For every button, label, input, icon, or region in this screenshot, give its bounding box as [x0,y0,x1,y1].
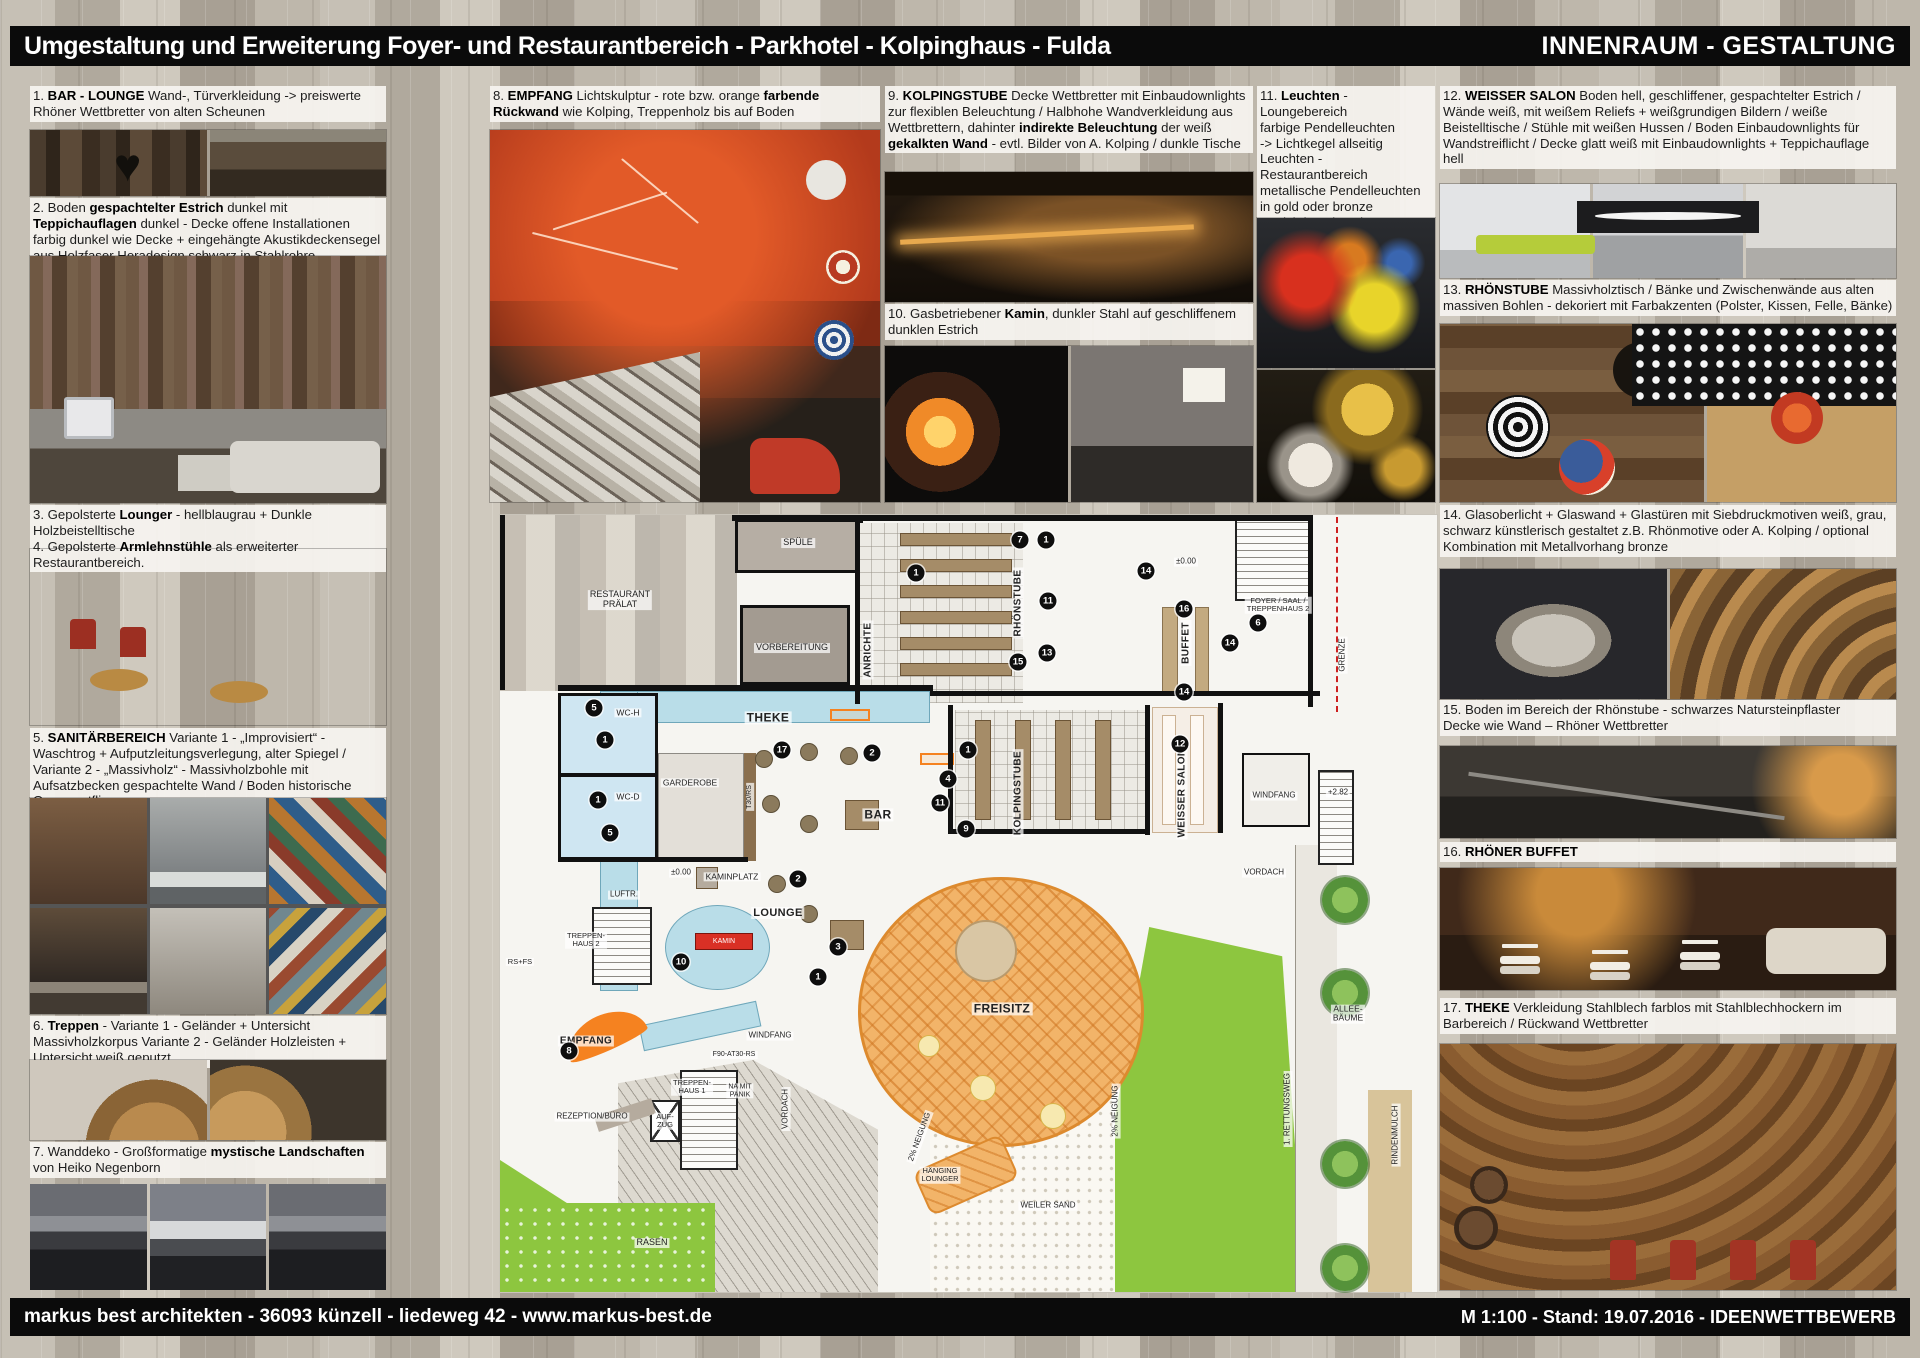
lime-pillow-shape [1476,235,1595,254]
annotation-keyword: BAR - LOUNGE [48,88,145,103]
photo-spiegel [30,908,147,1014]
bright-window-shape [1183,368,1225,402]
photo-landschaft-1 [30,1184,147,1290]
indirect-light-band [900,224,1194,244]
plan-marker-9: 9 [958,821,975,838]
photo-landschaften-row [30,1184,386,1290]
annotation-text: 16. [1443,844,1465,859]
photo-fliesen-mix [269,908,386,1014]
photo-tv-wand [1593,184,1743,278]
plan-marker-6: 6 [1250,615,1267,632]
plan-marker-8: 8 [561,1043,578,1060]
photo-natursteinpflaster [1440,746,1896,838]
cake-stand-shape [1590,962,1630,970]
table-shape [210,681,268,703]
annotation-text: dunkel mit [224,200,288,215]
plan-marker-1: 1 [908,565,925,582]
annotation-keyword: SANITÄRBEREICH [48,730,166,745]
plan-marker-14: 14 [1222,635,1239,652]
plan-marker-1: 1 [1038,532,1055,549]
computer-display [64,397,114,439]
annotation-11-leuchten: 11. Leuchten - Loungebereich farbige Pen… [1257,86,1435,233]
annotation-text: 5. [33,730,48,745]
board-subtitle: INNENRAUM - GESTALTUNG [1542,32,1897,61]
plan-marker-4: 4 [940,771,957,788]
annotation-text: 17. [1443,1000,1465,1015]
chair-shape [70,619,96,649]
annotation-text: 12. [1443,88,1465,103]
architect-credit: markus best architekten - 36093 künzell … [24,1306,712,1328]
photo-kolpingstube [885,172,1253,302]
annotation-text: 13. [1443,282,1465,297]
photo-barn-interior [210,130,387,196]
photo-pendelleuchten-farbig [1257,218,1435,368]
light-sculpture-line [553,192,668,231]
annotation-keyword: Teppichauflagen [33,216,137,231]
photo-ornamentfliesen [269,798,386,904]
plan-marker-13: 13 [1039,645,1056,662]
montage-row-1 [30,798,386,904]
plan-marker-5: 5 [602,825,619,842]
annotation-17-theke: 17. THEKE Verkleidung Stahlblech farblos… [1440,998,1896,1034]
plan-marker-1: 1 [960,742,977,759]
photo-theke-bar [1440,1044,1896,1290]
annotation-keyword: indirekte Beleuchtung [1019,120,1158,135]
photo-pendelleuchten-gold [1257,370,1435,502]
plan-marker-11: 11 [932,795,949,812]
annotation-text: wie Kolping, Treppenholz bis auf Boden [559,104,794,119]
annotation-text: - evtl. Bilder von A. Kolping / dunkle T… [988,136,1241,151]
spiral-plate [1486,395,1550,459]
cake-stand-shape [1500,956,1540,964]
barrel-shape [1454,1206,1498,1250]
annotation-text: 10. Gasbetriebener [888,306,1005,321]
annotation-text: 8. [493,88,508,103]
photo-kamin-stahl [1071,346,1254,502]
footer-bar: markus best architekten - 36093 künzell … [10,1298,1910,1336]
header-bar: Umgestaltung und Erweiterung Foyer- und … [10,26,1910,66]
photo-massivholz-wc [150,798,267,904]
bar-stool-shape [1670,1240,1696,1280]
annotation-15-boden-rhoenstube: 15. Boden im Bereich der Rhönstube - sch… [1440,700,1896,736]
plan-marker-12: 12 [1172,736,1189,753]
annotation-text: 2. Boden [33,200,89,215]
bar-stool-shape [1730,1240,1756,1280]
plan-marker-1: 1 [810,969,827,986]
photo-landschaft-2 [150,1184,267,1290]
photo-farbakzente [1707,324,1896,502]
heart-cutout-icon: ♥ [114,138,141,192]
plan-marker-1: 1 [590,792,607,809]
scale-and-date: M 1:100 - Stand: 19.07.2016 - IDEENWETTB… [1461,1307,1896,1328]
annotation-text: von Heiko Negenborn [33,1160,161,1175]
board-title: Umgestaltung und Erweiterung Foyer- und … [24,32,1111,61]
photo-restaurant-warm [30,549,386,725]
photo-rhoenstube-row [1440,324,1896,502]
wall-plate-shape [826,250,860,284]
photo-barn-door: ♥ [30,130,207,196]
photo-treppe-variante-1 [30,1060,207,1140]
handrail-shape [1469,772,1786,820]
annotation-keyword: Kamin [1005,306,1045,321]
photo-weisser-salon-row [1440,184,1896,278]
annotation-13-rhoenstube: 13. RHÖNSTUBE Massivholztisch / Bänke un… [1440,280,1896,316]
annotation-9-kolpingstube: 9. KOLPINGSTUBE Decke Wettbretter mit Ei… [885,86,1253,153]
sofa-shape [230,441,380,493]
montage-row-2 [30,908,386,1014]
annotation-12-weisser-salon: 12. WEISSER SALON Boden hell, geschliffe… [1440,86,1896,169]
annotation-keyword: Lounger [120,507,173,522]
photo-weisses-sofa [1440,184,1590,278]
plan-marker-14: 14 [1138,563,1155,580]
photo-barn-wood-heart: ♥ [30,130,386,196]
annotation-14-glasoberlicht: 14. Glasoberlicht + Glaswand + Glastüren… [1440,505,1896,557]
polka-dot-textile [1632,324,1896,406]
plan-marker-7: 7 [1012,532,1029,549]
wall-plate-shape [814,320,854,360]
annotation-text: 11. [1260,88,1281,103]
photo-holz-wellen [1670,569,1897,699]
annotation-7-wanddeko: 7. Wanddeko - Großformatige mystische La… [30,1142,386,1178]
plan-markers-layer: 71141111661413151451172121411195210318 [500,515,1437,1292]
bar-stool-shape [1610,1240,1636,1280]
wall-clock-shape [806,160,846,200]
annotation-keyword: KOLPINGSTUBE [903,88,1008,103]
chair-shape [120,627,146,657]
annotation-keyword: Treppen [48,1018,99,1033]
plan-marker-17: 17 [774,742,791,759]
photo-siebdruck-row [1440,569,1896,699]
annotation-keyword: gespachtelter Estrich [89,200,223,215]
light-sculpture-line [621,158,699,224]
photo-landschaft-3 [269,1184,386,1290]
presentation-board: Umgestaltung und Erweiterung Foyer- und … [0,0,1920,1358]
photo-sanitaer-montage [30,798,386,1014]
plan-marker-15: 15 [1010,654,1027,671]
photo-pferd-motiv [1440,569,1667,699]
plan-marker-16: 16 [1176,601,1193,618]
annotation-keyword: THEKE [1465,1000,1510,1015]
annotation-text: 15. Boden im Bereich der Rhönstube - sch… [1443,702,1840,733]
blue-plate [1559,439,1615,495]
floor-plan: RESTAURANT PRÄLATSPÜLEVORBEREITUNGANRICH… [500,515,1437,1292]
plan-marker-3: 3 [830,939,847,956]
annotation-text: 14. Glasoberlicht + Glaswand + Glastüren… [1443,507,1886,554]
cake-stand-shape [1680,952,1720,960]
annotation-text: der weiß [1157,120,1211,135]
sofa-shape [1766,928,1886,974]
annotation-keyword: WEISSER SALON [1465,88,1576,103]
photo-treppen [30,1060,386,1140]
annotation-1-bar-lounge: 1. BAR - LOUNGE Wand-, Türverkleidung ->… [30,86,386,122]
photo-beistelltisch [1746,184,1896,278]
annotation-keyword: gekalkten Wand [888,136,988,151]
annotation-keyword: mystische Landschaften [211,1144,365,1159]
plan-marker-10: 10 [673,954,690,971]
plan-marker-2: 2 [790,871,807,888]
plan-marker-14: 14 [1176,684,1193,701]
glass-table-shape [1595,212,1741,220]
photo-empfang-lichtskulptur [490,130,880,502]
annotation-keyword: RHÖNSTUBE [1465,282,1549,297]
photo-buffet [1440,868,1896,990]
plan-marker-5: 5 [586,700,603,717]
annotation-keyword: Leuchten [1281,88,1340,103]
annotation-text: 7. Wanddeko - Großformatige [33,1144,211,1159]
barrel-shape [1470,1166,1508,1204]
table-shape [90,669,148,691]
light-sculpture-line [532,232,678,270]
annotation-text: 9. [888,88,903,103]
photo-treppe-variante-2 [210,1060,387,1140]
annotation-keyword: RHÖNER BUFFET [1465,844,1578,859]
red-chair-shape [750,438,840,494]
bar-stool-shape [1790,1240,1816,1280]
annotation-text: 6. [33,1018,48,1033]
stairs-shape [490,352,700,502]
photo-aufsatzbecken [150,908,267,1014]
orange-plate [1771,392,1823,444]
photo-feuer [885,346,1068,502]
annotation-16-rhoener-buffet: 16. RHÖNER BUFFET [1440,842,1896,862]
annotation-keyword: EMPFANG [508,88,573,103]
annotation-text: Lichtskulptur - rote bzw. orange [573,88,764,103]
annotation-8-empfang: 8. EMPFANG Lichtskulptur - rote bzw. ora… [490,86,880,122]
annotation-10-kamin: 10. Gasbetriebener Kamin, dunkler Stahl … [885,304,1253,340]
annotation-text: - Loungebereich farbige Pendelleuchten -… [1260,88,1421,230]
annotation-text: 1. [33,88,48,103]
plan-marker-1: 1 [597,732,614,749]
photo-bar-lounge-interior [30,256,386,503]
photo-kamin [885,346,1253,502]
annotation-text: 3. Gepolsterte [33,507,120,522]
plan-marker-11: 11 [1040,593,1057,610]
plan-marker-2: 2 [864,745,881,762]
photo-waschtrog [30,798,147,904]
